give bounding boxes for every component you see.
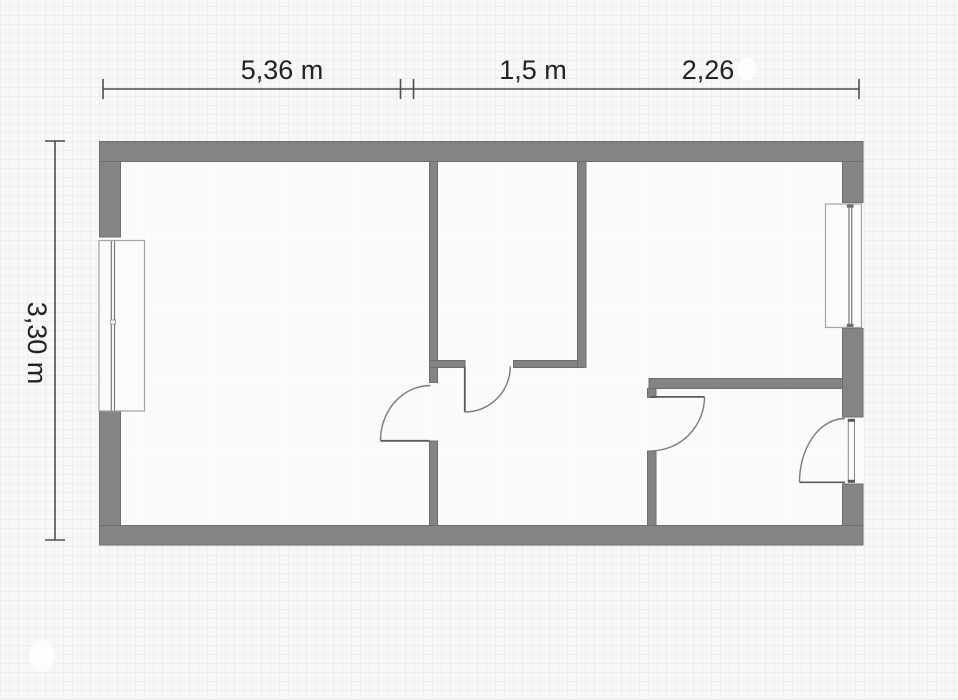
svg-text:5,36 m: 5,36 m (241, 55, 324, 85)
svg-text:3,30 m: 3,30 m (22, 302, 52, 385)
svg-text:1,5 m: 1,5 m (499, 55, 567, 85)
svg-text:2,26: 2,26 (682, 55, 735, 85)
